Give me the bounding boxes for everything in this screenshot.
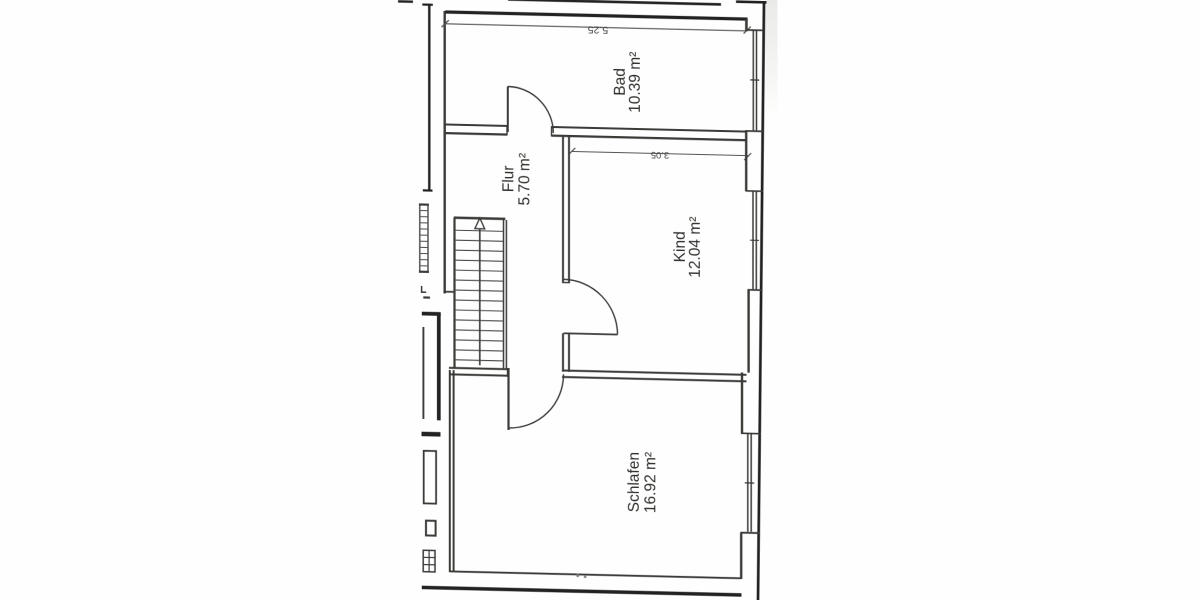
svg-text:Schlafen16.92 m²: Schlafen16.92 m² (626, 451, 660, 513)
svg-text:3.05: 3.05 (651, 149, 669, 160)
svg-text:5.25: 5.25 (588, 24, 609, 36)
